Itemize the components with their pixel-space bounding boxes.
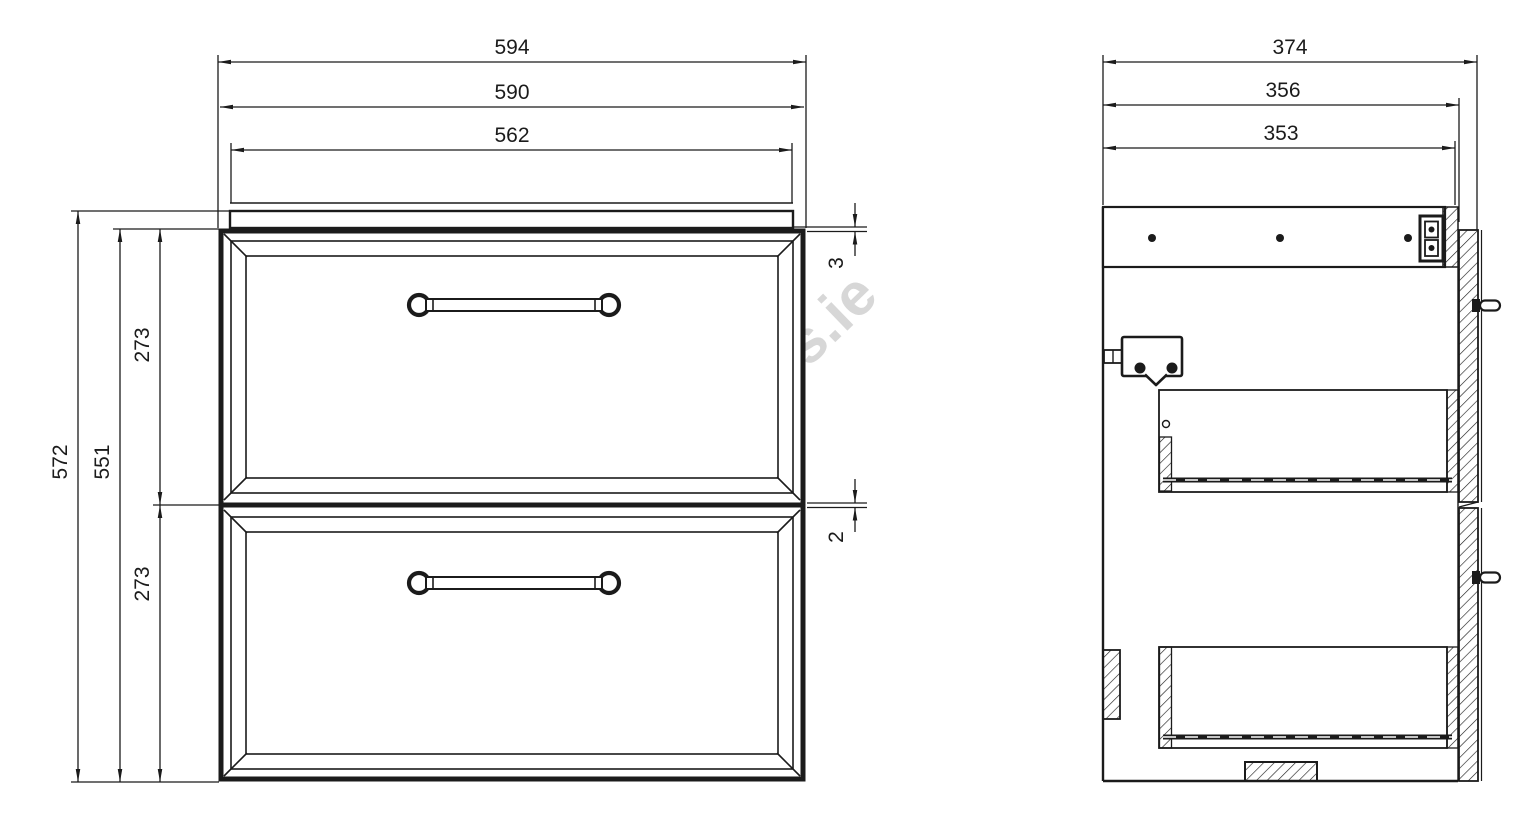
countertop-slab xyxy=(230,211,793,228)
dim-label-carcass-height: 551 xyxy=(91,444,114,479)
drawer-front-bottom-section xyxy=(1459,508,1478,781)
pin-shaft xyxy=(1480,573,1500,583)
screw-hole xyxy=(1148,234,1156,242)
dim-label-drawer-gap: 2 xyxy=(825,531,848,543)
box-front-section xyxy=(1447,647,1458,748)
front-view xyxy=(221,203,803,779)
handle-bar xyxy=(426,577,602,589)
bracket-body xyxy=(1420,216,1443,261)
dim-label-overall-width: 594 xyxy=(494,36,529,59)
bracket-screw xyxy=(1429,227,1435,233)
top-rail-section xyxy=(1443,207,1458,267)
pin-base xyxy=(1472,571,1480,584)
handle-pin-bottom xyxy=(1472,571,1500,584)
plinth-rail-section xyxy=(1245,762,1317,781)
bracket-screw xyxy=(1429,245,1435,251)
dim-label-carcass-depth: 356 xyxy=(1265,79,1300,102)
pin-shaft xyxy=(1480,301,1500,311)
dim-label-countertop-width: 562 xyxy=(494,124,529,147)
clip-roller-left xyxy=(1135,363,1146,374)
dim-label-carcass-width: 590 xyxy=(494,81,529,104)
screw-hole xyxy=(1404,234,1412,242)
screw-hole xyxy=(1276,234,1284,242)
dim-label-overall-height: 572 xyxy=(49,444,72,479)
box-front-section xyxy=(1447,390,1458,492)
technical-drawing-page: alasans.ie xyxy=(0,0,1532,816)
dim-label-overall-depth: 374 xyxy=(1272,36,1307,59)
dim-label-countertop-lip: 3 xyxy=(825,257,848,269)
box-side-section xyxy=(1160,437,1172,491)
dim-label-internal-depth: 353 xyxy=(1263,122,1298,145)
mounting-bracket xyxy=(1420,216,1443,261)
drawer-bottom-handle xyxy=(409,573,619,593)
handle-pin-top xyxy=(1472,299,1500,312)
cabinet-technical-drawing: alasans.ie xyxy=(0,0,1532,816)
box-side-section xyxy=(1160,647,1172,748)
handle-bar xyxy=(426,299,602,311)
clip-roller-right xyxy=(1167,363,1178,374)
dim-label-top-drawer-height: 273 xyxy=(131,327,154,362)
drawer-top-handle xyxy=(409,295,619,315)
pin-base xyxy=(1472,299,1480,312)
back-wall-block-section xyxy=(1103,650,1120,719)
dim-label-bottom-drawer-height: 273 xyxy=(131,566,154,601)
drawer-front-top-section xyxy=(1459,230,1478,502)
